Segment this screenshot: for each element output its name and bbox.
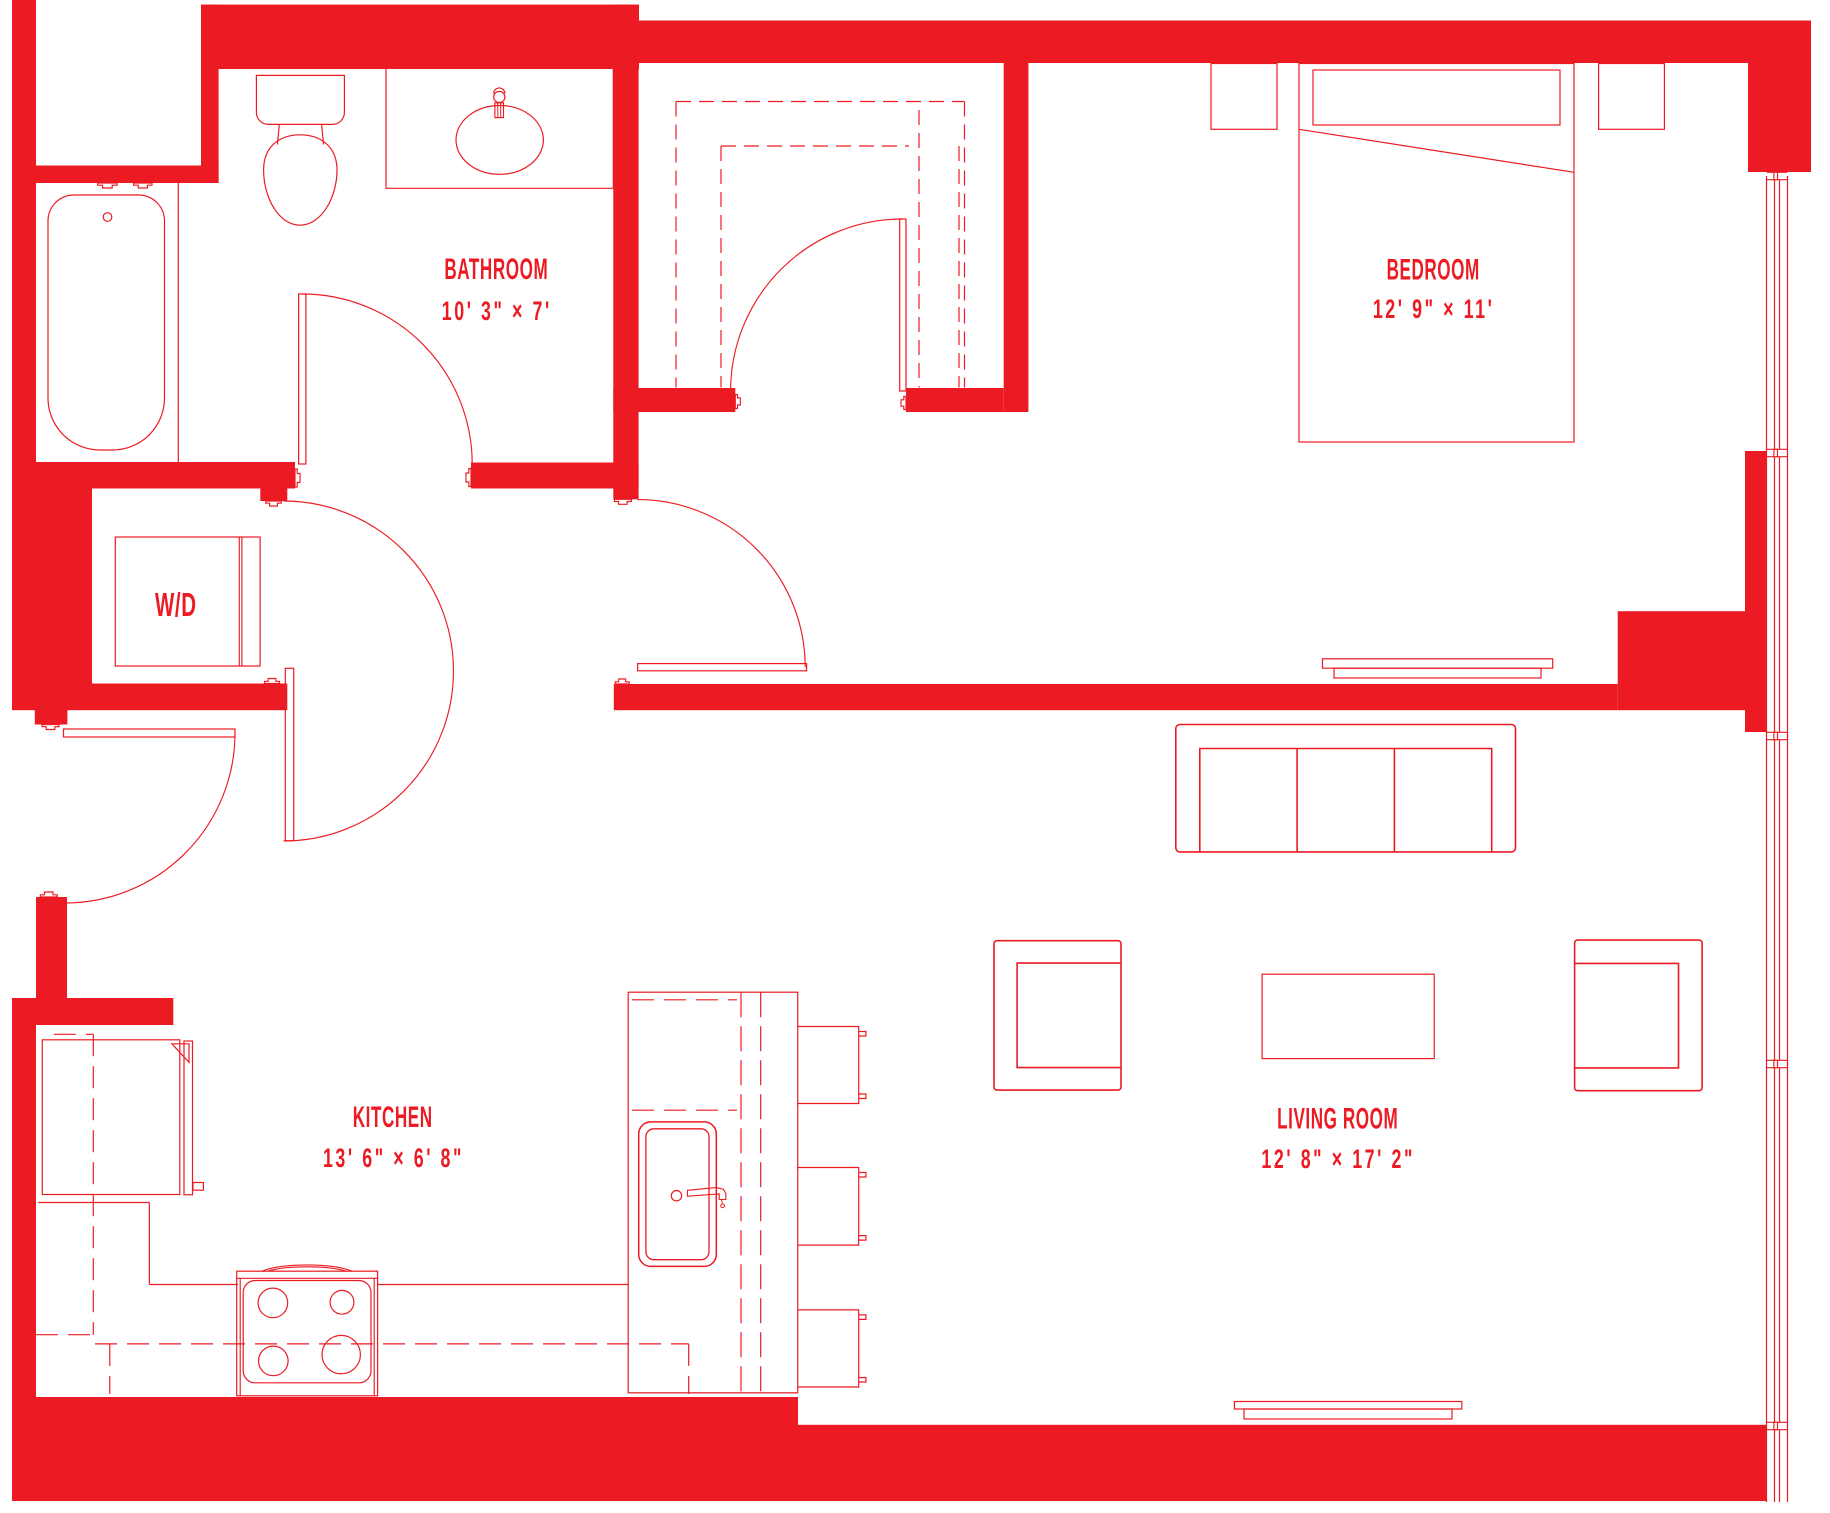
svg-text:W/D: W/D (155, 586, 197, 623)
svg-text:BATHROOM: BATHROOM (444, 253, 548, 286)
svg-text:13' 6" × 6' 8": 13' 6" × 6' 8" (323, 1142, 464, 1173)
svg-text:KITCHEN: KITCHEN (353, 1101, 433, 1134)
svg-text:BEDROOM: BEDROOM (1387, 253, 1480, 286)
svg-text:10' 3" × 7': 10' 3" × 7' (442, 295, 552, 326)
svg-text:12' 9" × 11': 12' 9" × 11' (1373, 293, 1495, 324)
svg-text:LIVING ROOM: LIVING ROOM (1277, 1103, 1398, 1136)
svg-text:12' 8" × 17' 2": 12' 8" × 17' 2" (1261, 1143, 1415, 1174)
